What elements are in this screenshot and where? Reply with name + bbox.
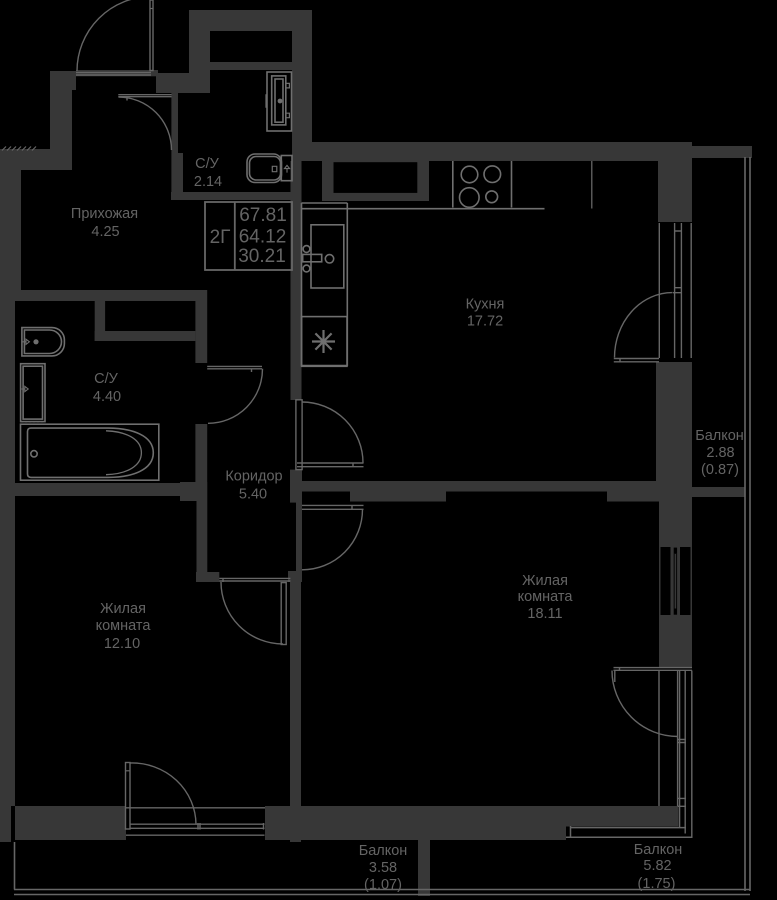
svg-text:17.72: 17.72 — [467, 314, 503, 330]
svg-text:комната: комната — [518, 589, 574, 605]
svg-text:4.25: 4.25 — [91, 224, 119, 240]
svg-text:(1.07): (1.07) — [364, 877, 402, 893]
svg-text:4.40: 4.40 — [93, 389, 121, 405]
svg-text:(1.75): (1.75) — [638, 876, 676, 892]
svg-text:комната: комната — [96, 618, 152, 634]
svg-text:30.21: 30.21 — [238, 246, 286, 267]
svg-text:Коридор: Коридор — [225, 469, 282, 485]
svg-text:Балкон: Балкон — [634, 842, 683, 858]
svg-text:С/У: С/У — [195, 156, 220, 172]
svg-text:3.58: 3.58 — [369, 860, 397, 876]
svg-text:67.81: 67.81 — [239, 205, 287, 226]
svg-text:Балкон: Балкон — [695, 428, 744, 444]
svg-text:18.11: 18.11 — [527, 606, 562, 622]
svg-text:С/У: С/У — [94, 371, 119, 387]
svg-text:Жилая: Жилая — [100, 601, 146, 617]
svg-text:5.40: 5.40 — [239, 487, 267, 503]
svg-text:(0.87): (0.87) — [701, 462, 739, 478]
svg-text:2.88: 2.88 — [706, 445, 734, 461]
svg-text:2Г: 2Г — [210, 227, 231, 248]
svg-text:Балкон: Балкон — [359, 843, 408, 859]
svg-text:12.10: 12.10 — [104, 636, 140, 652]
svg-text:Кухня: Кухня — [466, 297, 505, 313]
svg-text:Жилая: Жилая — [522, 573, 568, 589]
svg-text:5.82: 5.82 — [643, 858, 671, 874]
svg-text:Прихожая: Прихожая — [71, 206, 138, 222]
svg-text:64.12: 64.12 — [239, 227, 287, 248]
svg-text:2.14: 2.14 — [194, 174, 222, 190]
